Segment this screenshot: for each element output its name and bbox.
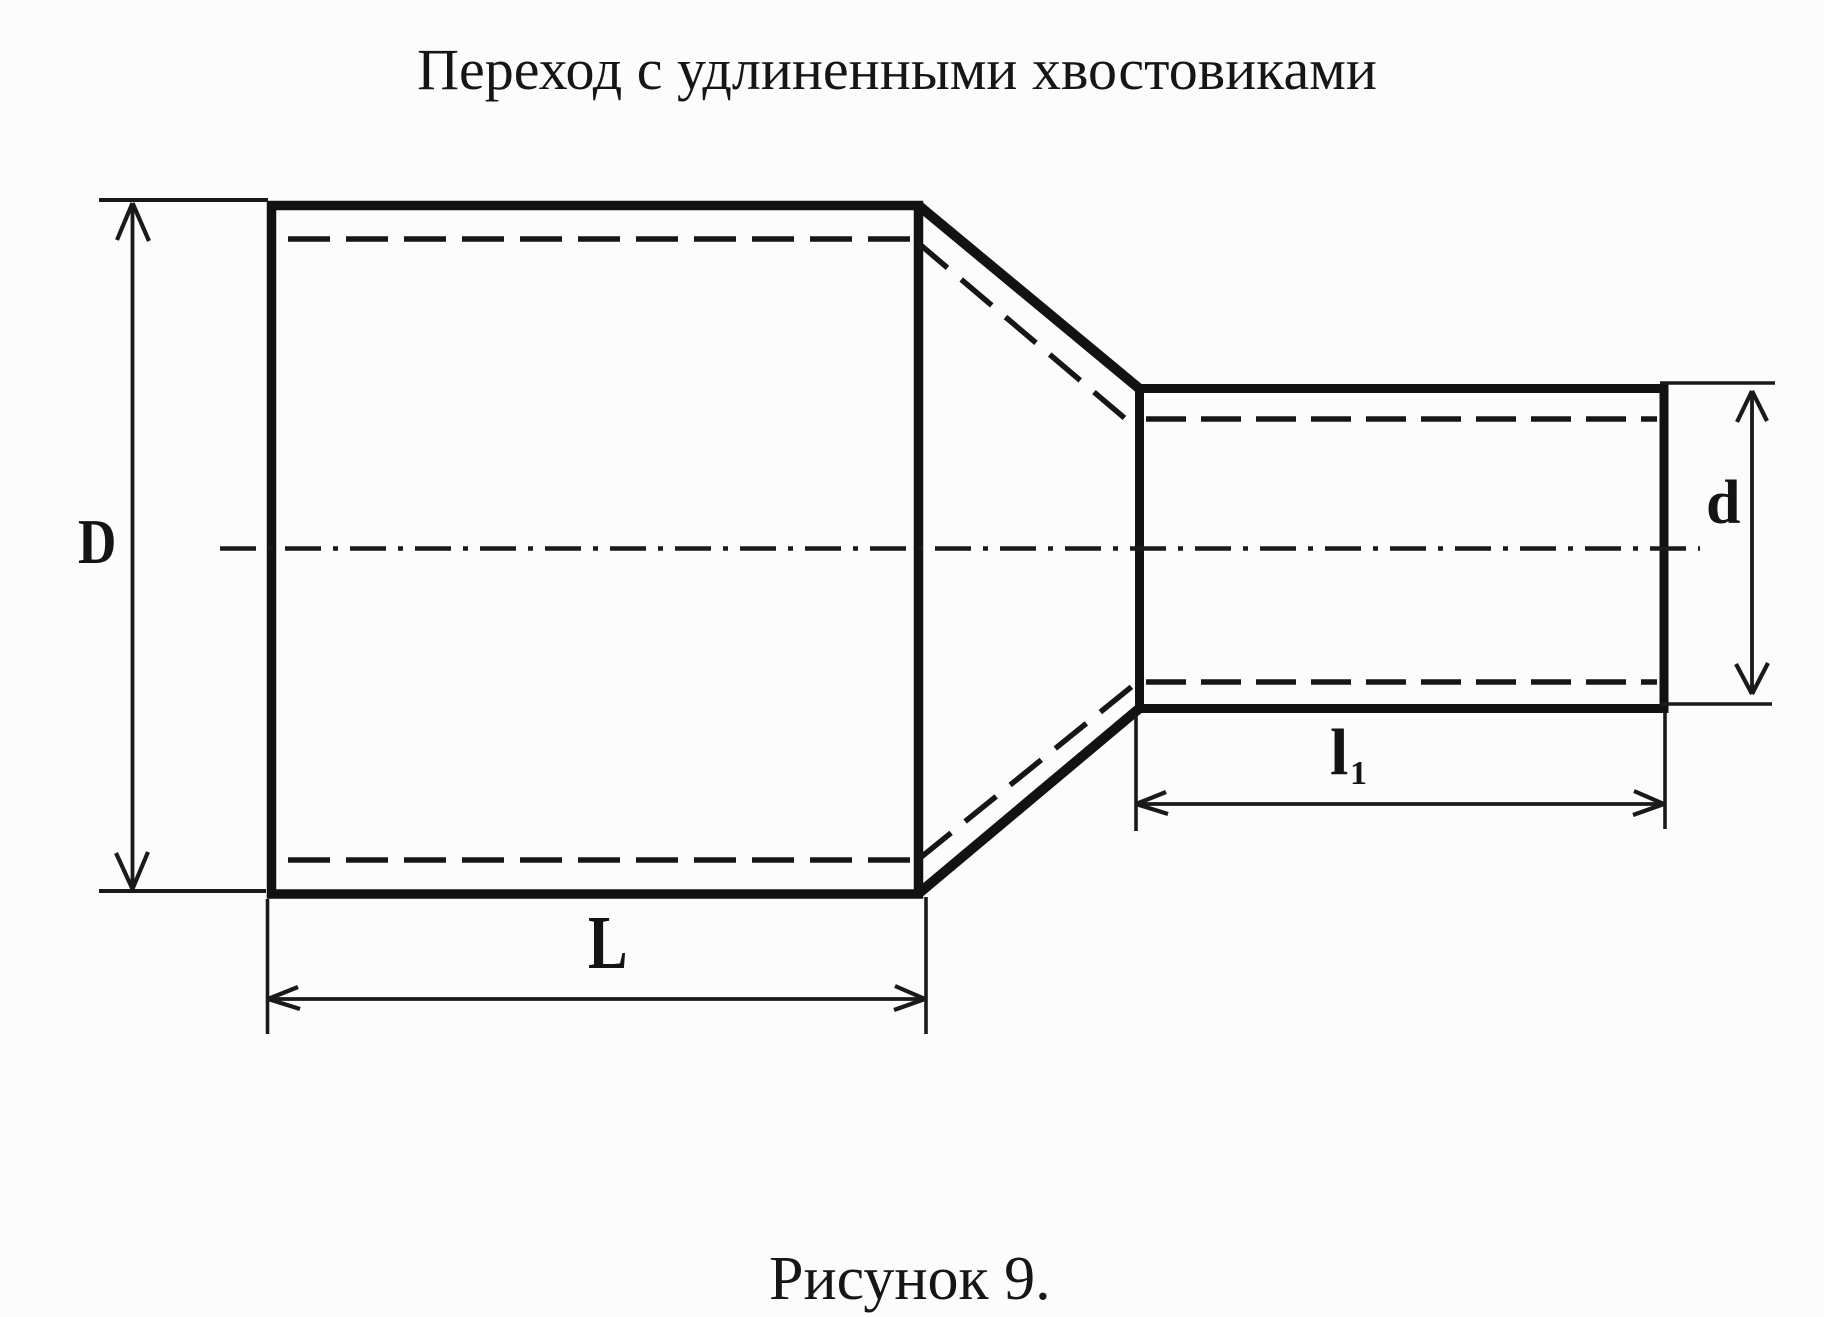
svg-text:L: L <box>588 900 628 985</box>
svg-text:1: 1 <box>1350 755 1367 792</box>
svg-text:D: D <box>78 506 116 577</box>
svg-text:Переход с удлиненными хвостови: Переход с удлиненными хвостовиками <box>417 37 1377 102</box>
svg-text:d: d <box>1706 469 1740 537</box>
svg-text:Рисунок 9.: Рисунок 9. <box>769 1245 1051 1313</box>
svg-text:l: l <box>1330 716 1348 789</box>
